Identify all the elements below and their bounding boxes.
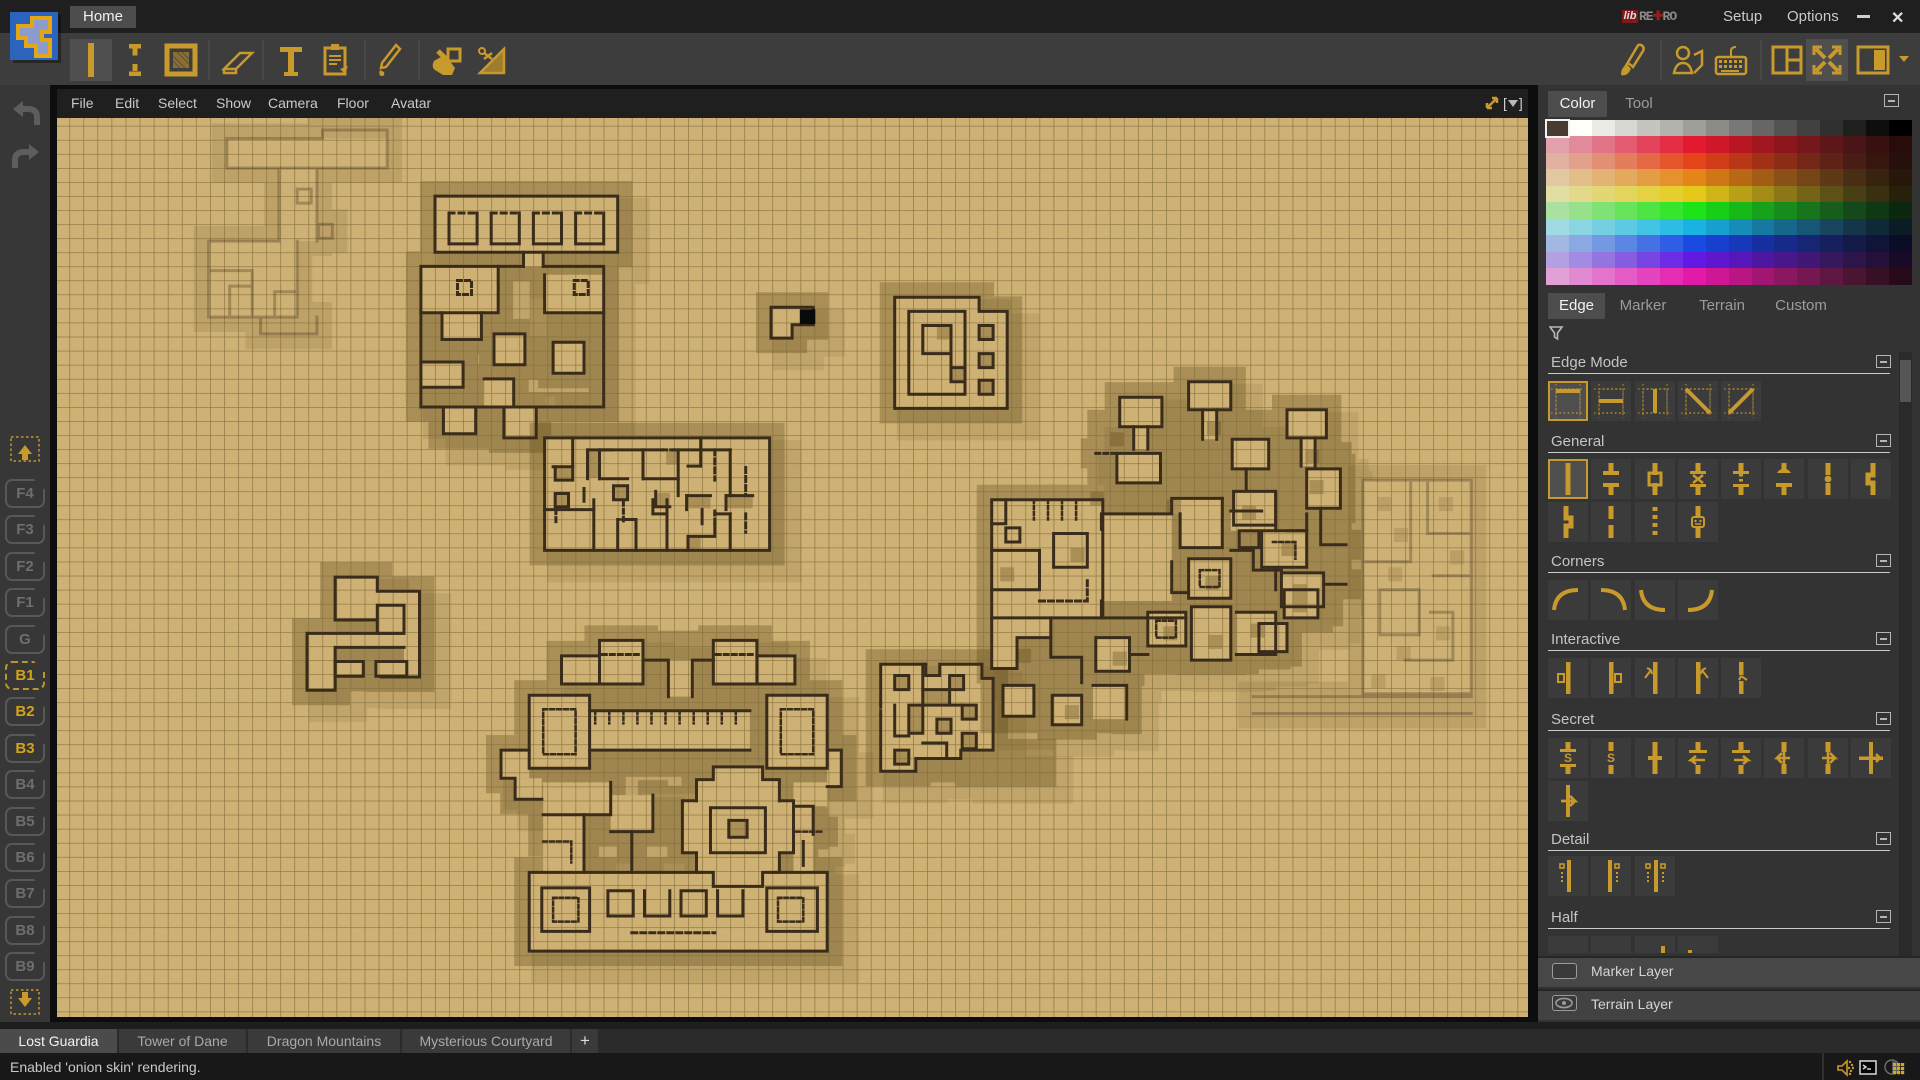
svg-text:S: S [1607,751,1615,765]
svg-text:S: S [1564,751,1572,765]
